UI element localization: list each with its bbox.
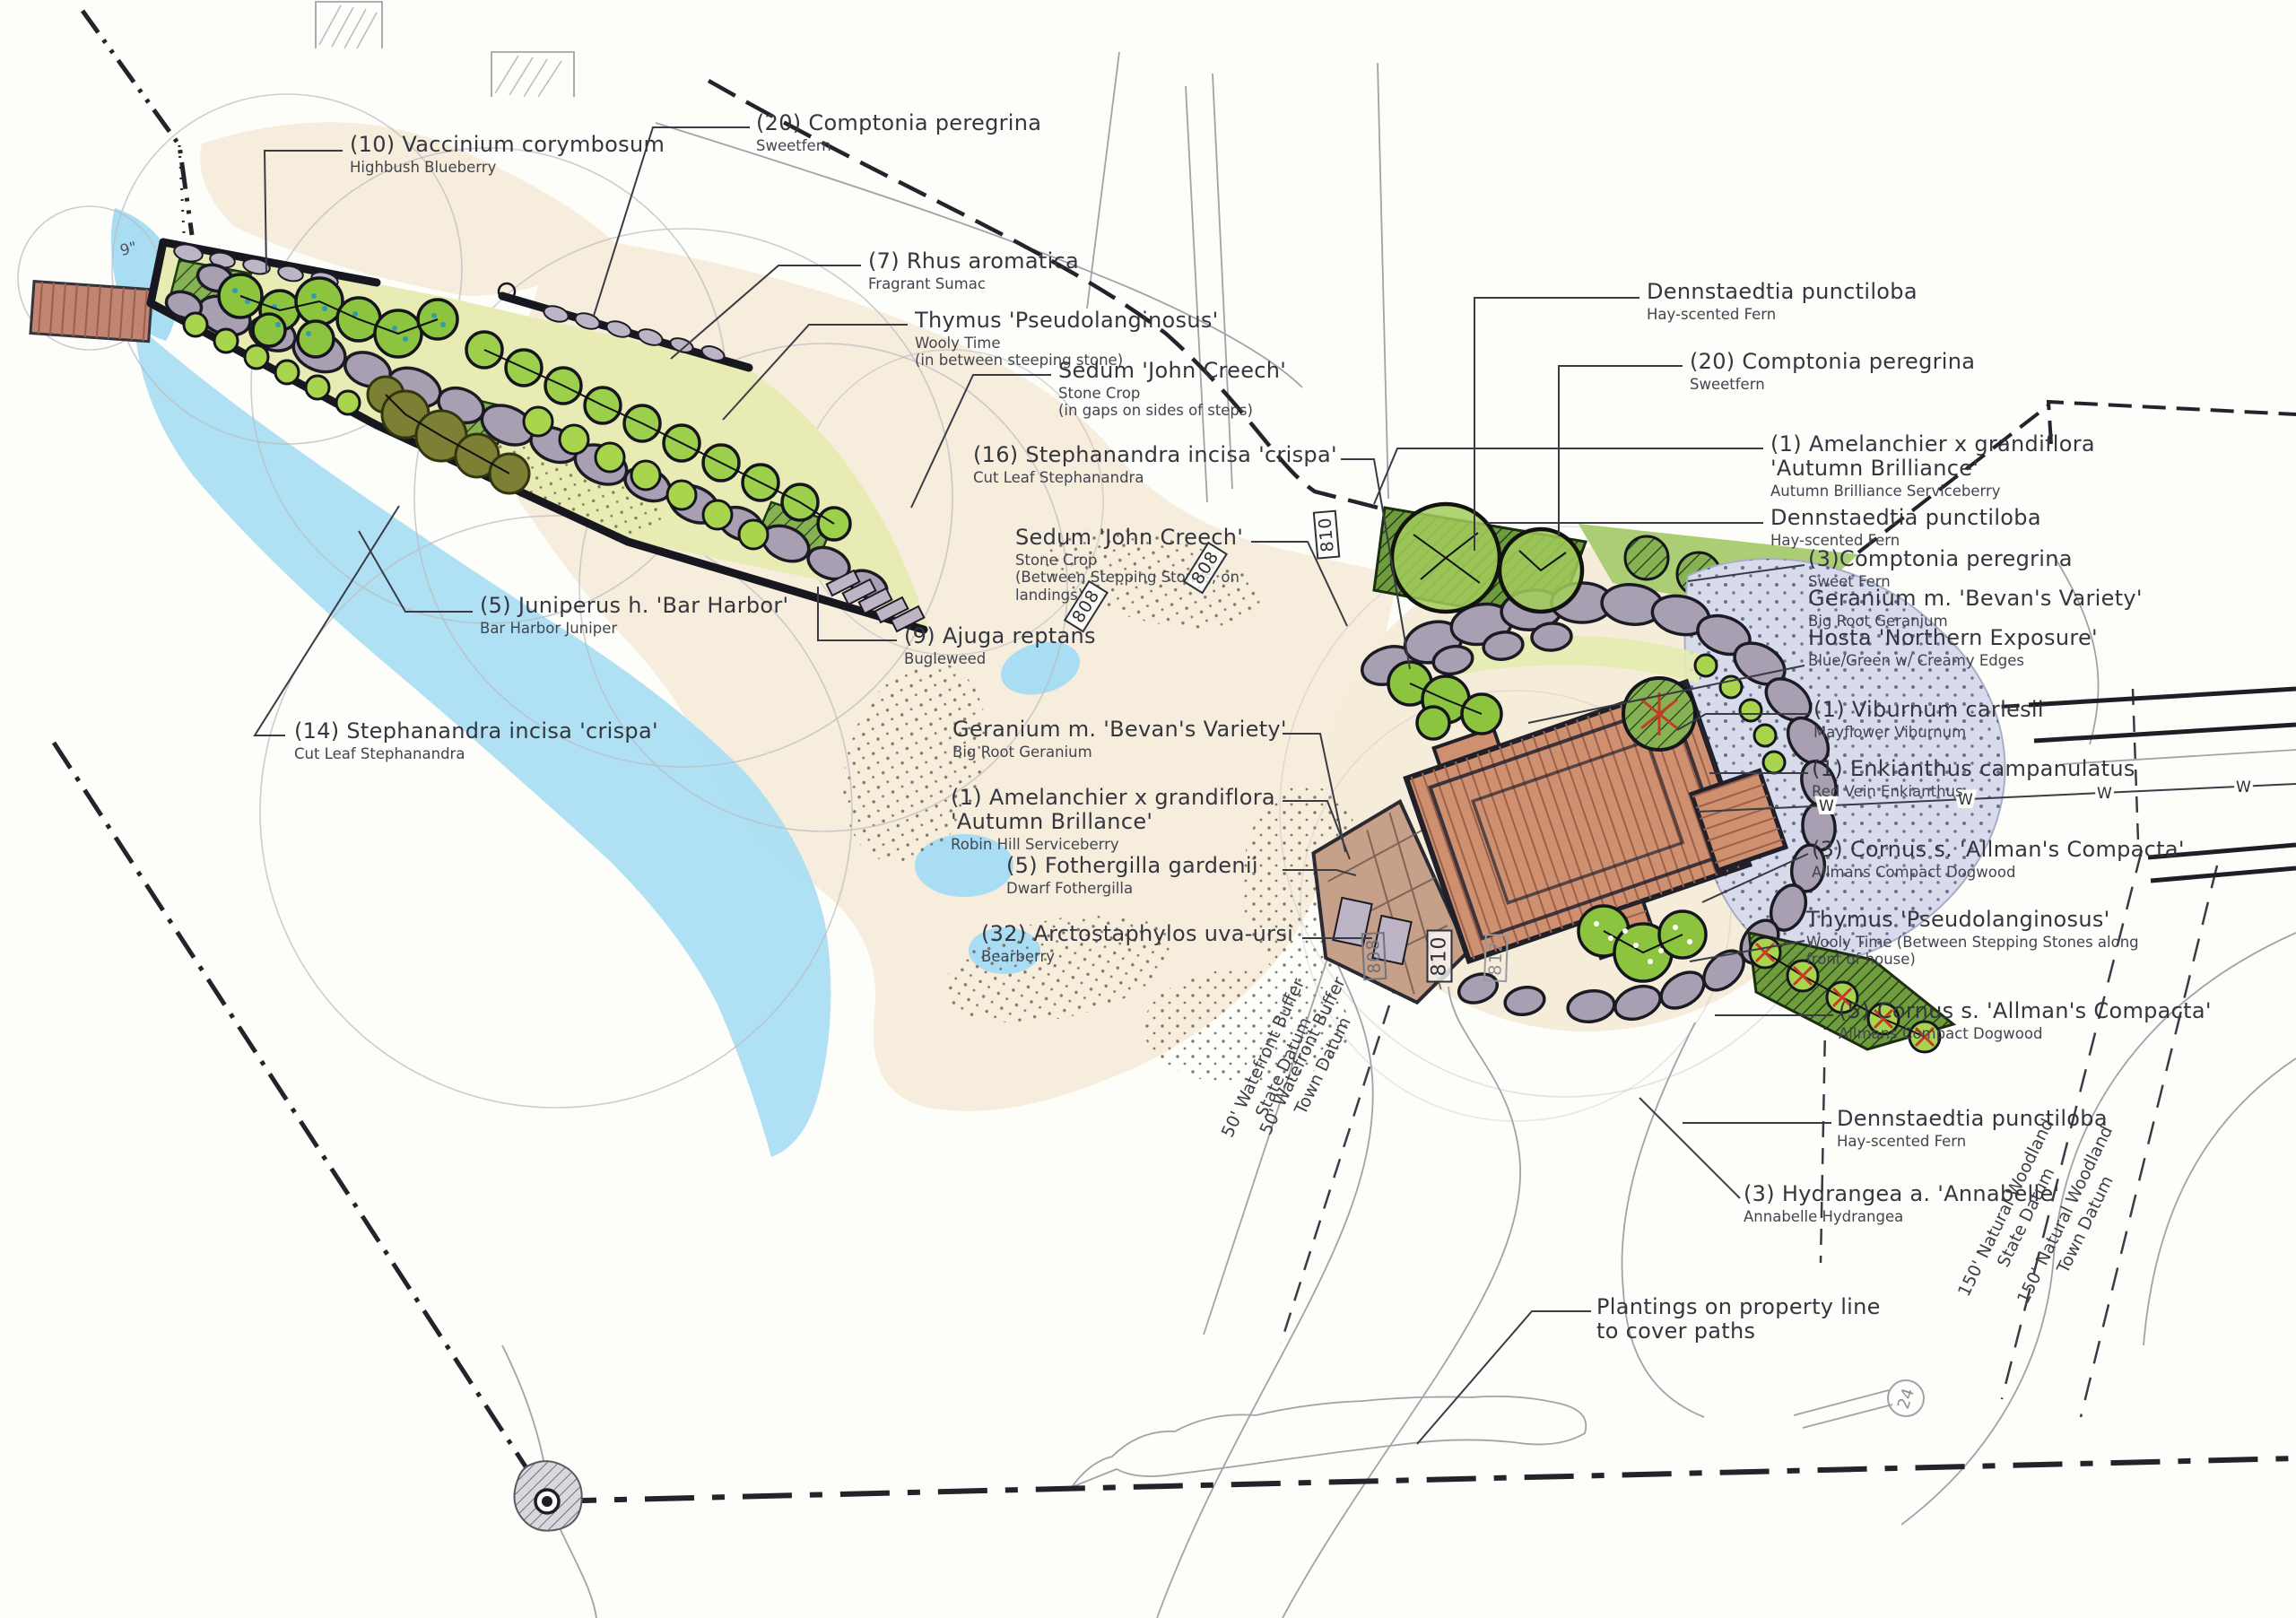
plant-label-comptonia-right: (20) Comptonia peregrina Sweetfern	[1690, 350, 1975, 393]
contour-tag-810-a: 810	[1313, 509, 1341, 559]
plant-label-amelanchier-right: (1) Amelanchier x grandiflora 'Autumn Br…	[1770, 432, 2095, 500]
plant-label-dennstaedtia-top: Dennstaedtia punctiloba Hay-scented Fern	[1647, 280, 1918, 323]
plant-label-amelanchier-left: (1) Amelanchier x grandiflora 'Autumn Br…	[951, 786, 1275, 853]
plant-label-stephanandra-14: (14) Stephanandra incisa 'crispa' Cut Le…	[294, 719, 658, 762]
plant-label-geranium-left: Geranium m. 'Bevan's Variety' Big Root G…	[952, 718, 1287, 761]
dock	[30, 282, 152, 342]
plant-label-stephanandra-16: (16) Stephanandra incisa 'crispa' Cut Le…	[973, 443, 1337, 486]
plant-label-juniperus: (5) Juniperus h. 'Bar Harbor' Bar Harbor…	[480, 594, 788, 637]
adjacent-structures	[316, 2, 574, 97]
plant-label-viburnum: (1) Viburnum carlesii Mayflower Viburnum	[1813, 698, 2044, 741]
contour-tag-812: 812	[1483, 934, 1509, 982]
plant-label-fothergilla: (5) Fothergilla gardenii Dwarf Fothergil…	[1006, 854, 1258, 897]
plant-label-vaccinium: (10) Vaccinium corymbosum Highbush Blueb…	[350, 133, 665, 176]
water-line-symbol: W	[2236, 779, 2251, 796]
plant-label-cornus-5: (5) Cornus s. 'Allman's Compacta' Allman…	[1839, 999, 2212, 1042]
plant-label-ajuga: (9) Ajuga reptans Bugleweed	[904, 624, 1096, 667]
plant-label-enkianthus: (1) Enkianthus campanulatus Red Vein Enk…	[1812, 757, 2135, 800]
tree-tag-callout	[1794, 1390, 1892, 1428]
plant-label-dennstaedtia-mid: Dennstaedtia punctiloba Hay-scented Fern	[1770, 506, 2041, 549]
plant-label-thymus-right: Thymus 'Pseudolanginosus' Wooly Time (Be…	[1806, 908, 2139, 969]
plant-label-geranium-right: Geranium m. 'Bevan's Variety' Big Root G…	[1808, 587, 2143, 630]
plant-label-cornus-3: (3) Cornus s. 'Allman's Compacta' Allman…	[1812, 838, 2185, 881]
survey-monument	[514, 1461, 581, 1531]
plant-label-arctostaphylos: (32) Arctostaphylos uva-ursi Bearberry	[981, 922, 1293, 965]
plant-label-comptonia-3: (3)Comptonia peregrina Sweet Fern	[1808, 547, 2073, 590]
plant-label-hosta: Hosta 'Northern Exposure' Blue/Green w/ …	[1808, 626, 2098, 669]
note-plantings-property-line: Plantings on property line to cover path…	[1596, 1295, 1881, 1344]
contour-tag-808-a: 808	[1361, 932, 1387, 981]
landscape-plan: { "page": { "background": "#fdfdfa", "in…	[0, 0, 2296, 1618]
plant-label-sedum-steps: Sedum 'John Creech' Stone Crop (in gaps …	[1058, 359, 1286, 420]
plant-label-comptonia-top: (20) Comptonia peregrina Sweetfern	[756, 111, 1041, 154]
tree-tag-24: 24	[1887, 1379, 1925, 1417]
plant-label-rhus: (7) Rhus aromatica Fragrant Sumac	[868, 249, 1079, 292]
contour-tag-810-b: 810	[1427, 930, 1453, 983]
